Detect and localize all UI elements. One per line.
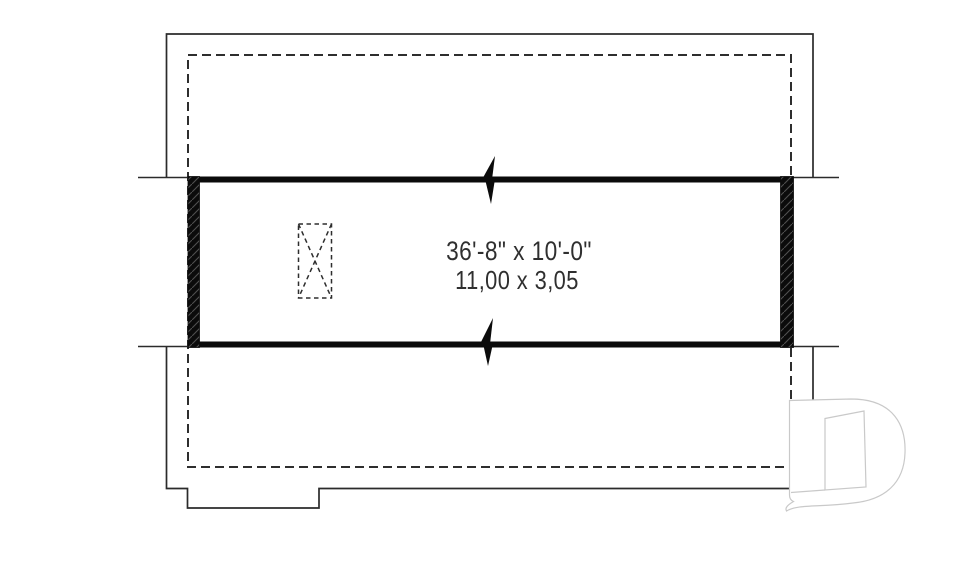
builder-logo-watermark: [786, 399, 905, 511]
break-mark-bottom-upper: [480, 318, 493, 344]
logo-inner-counter: [825, 411, 866, 490]
break-mark-bottom-lower: [483, 344, 493, 367]
floor-plan-page: 36'-8" x 10'-0" 11,00 x 3,05: [0, 0, 960, 569]
room-dimension-metric: 11,00 x 3,05: [349, 267, 685, 293]
chase-box-x-mark: [299, 224, 332, 298]
right-wall-hatched: [781, 177, 794, 348]
break-mark-top-upper: [482, 156, 495, 180]
dashed-chase-box: [299, 224, 332, 298]
room-dimension-imperial: 36'-8" x 10'-0": [351, 238, 687, 265]
left-wall-hatched: [188, 177, 200, 348]
break-mark-top-lower: [485, 179, 495, 204]
